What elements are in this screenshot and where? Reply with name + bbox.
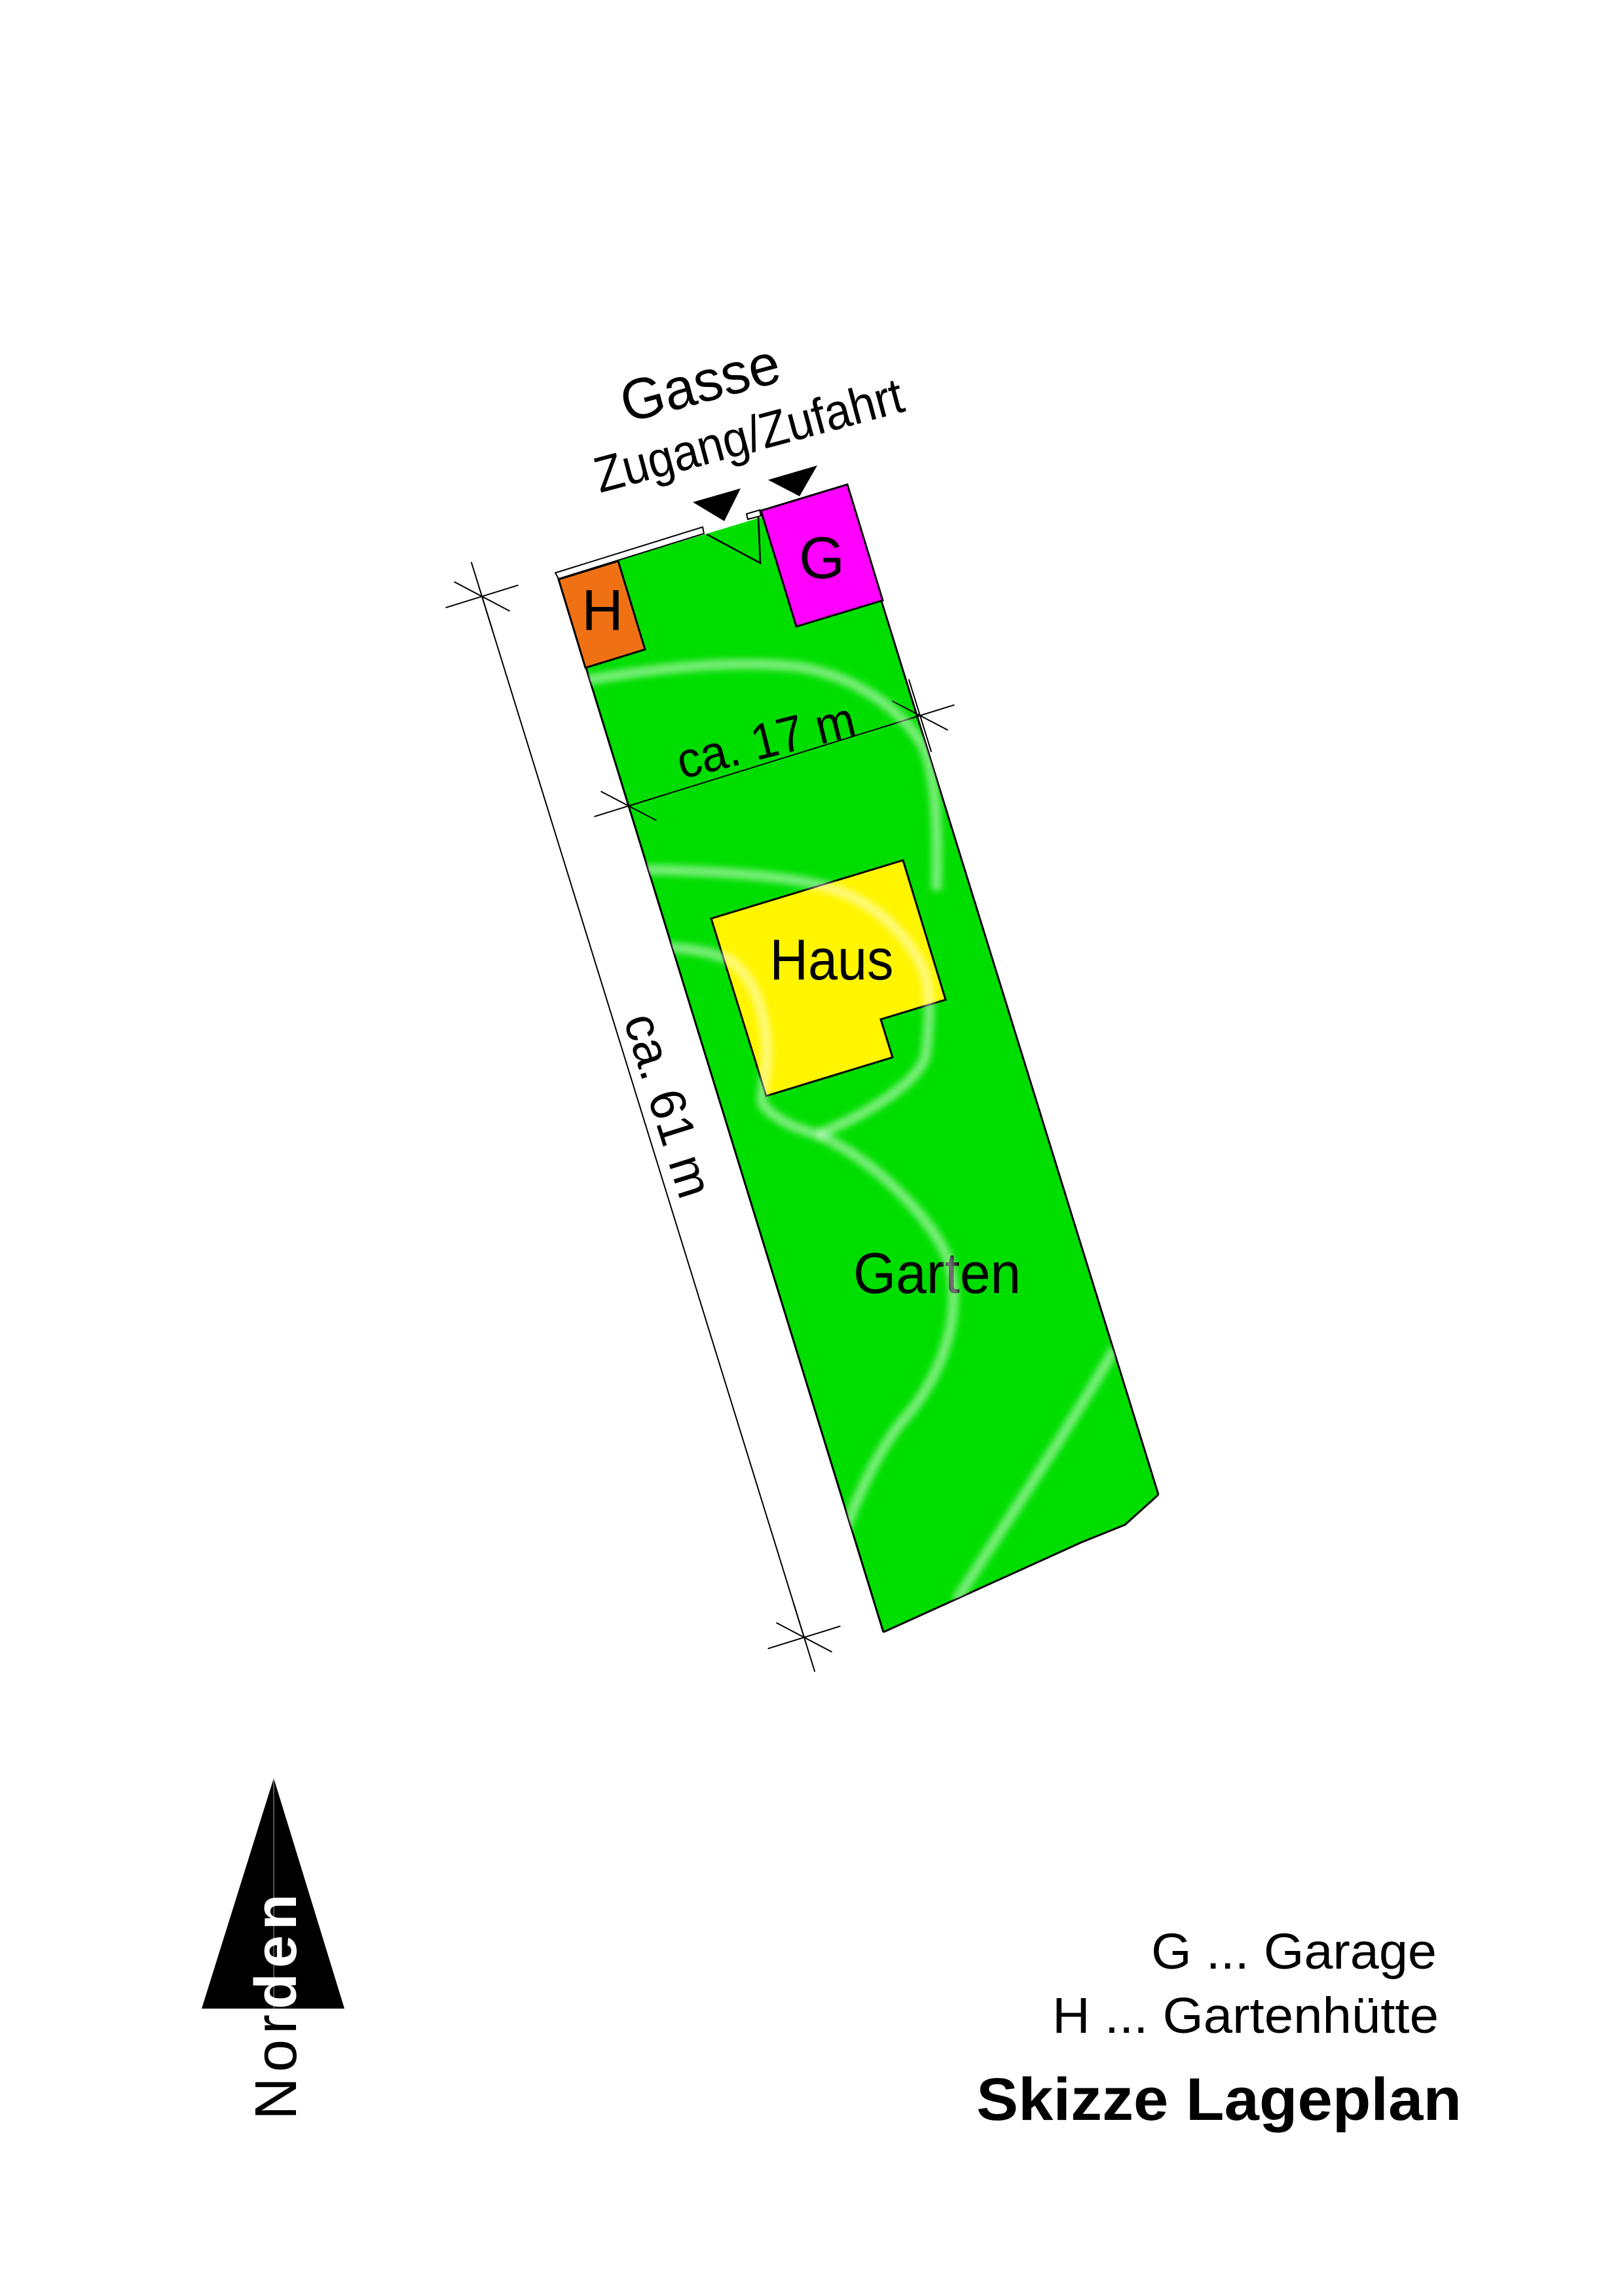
svg-text:H: H [581, 577, 623, 642]
svg-text:G ... Garage: G ... Garage [1151, 1923, 1437, 1980]
svg-text:Haus: Haus [770, 927, 894, 992]
svg-text:G: G [799, 526, 845, 591]
svg-text:Skizze Lageplan: Skizze Lageplan [976, 2066, 1462, 2133]
svg-text:H ... Gartenhütte: H ... Gartenhütte [1052, 1988, 1439, 2044]
svg-text:Garten: Garten [853, 1241, 1021, 1305]
svg-text:Norden: Norden [244, 1889, 309, 2120]
